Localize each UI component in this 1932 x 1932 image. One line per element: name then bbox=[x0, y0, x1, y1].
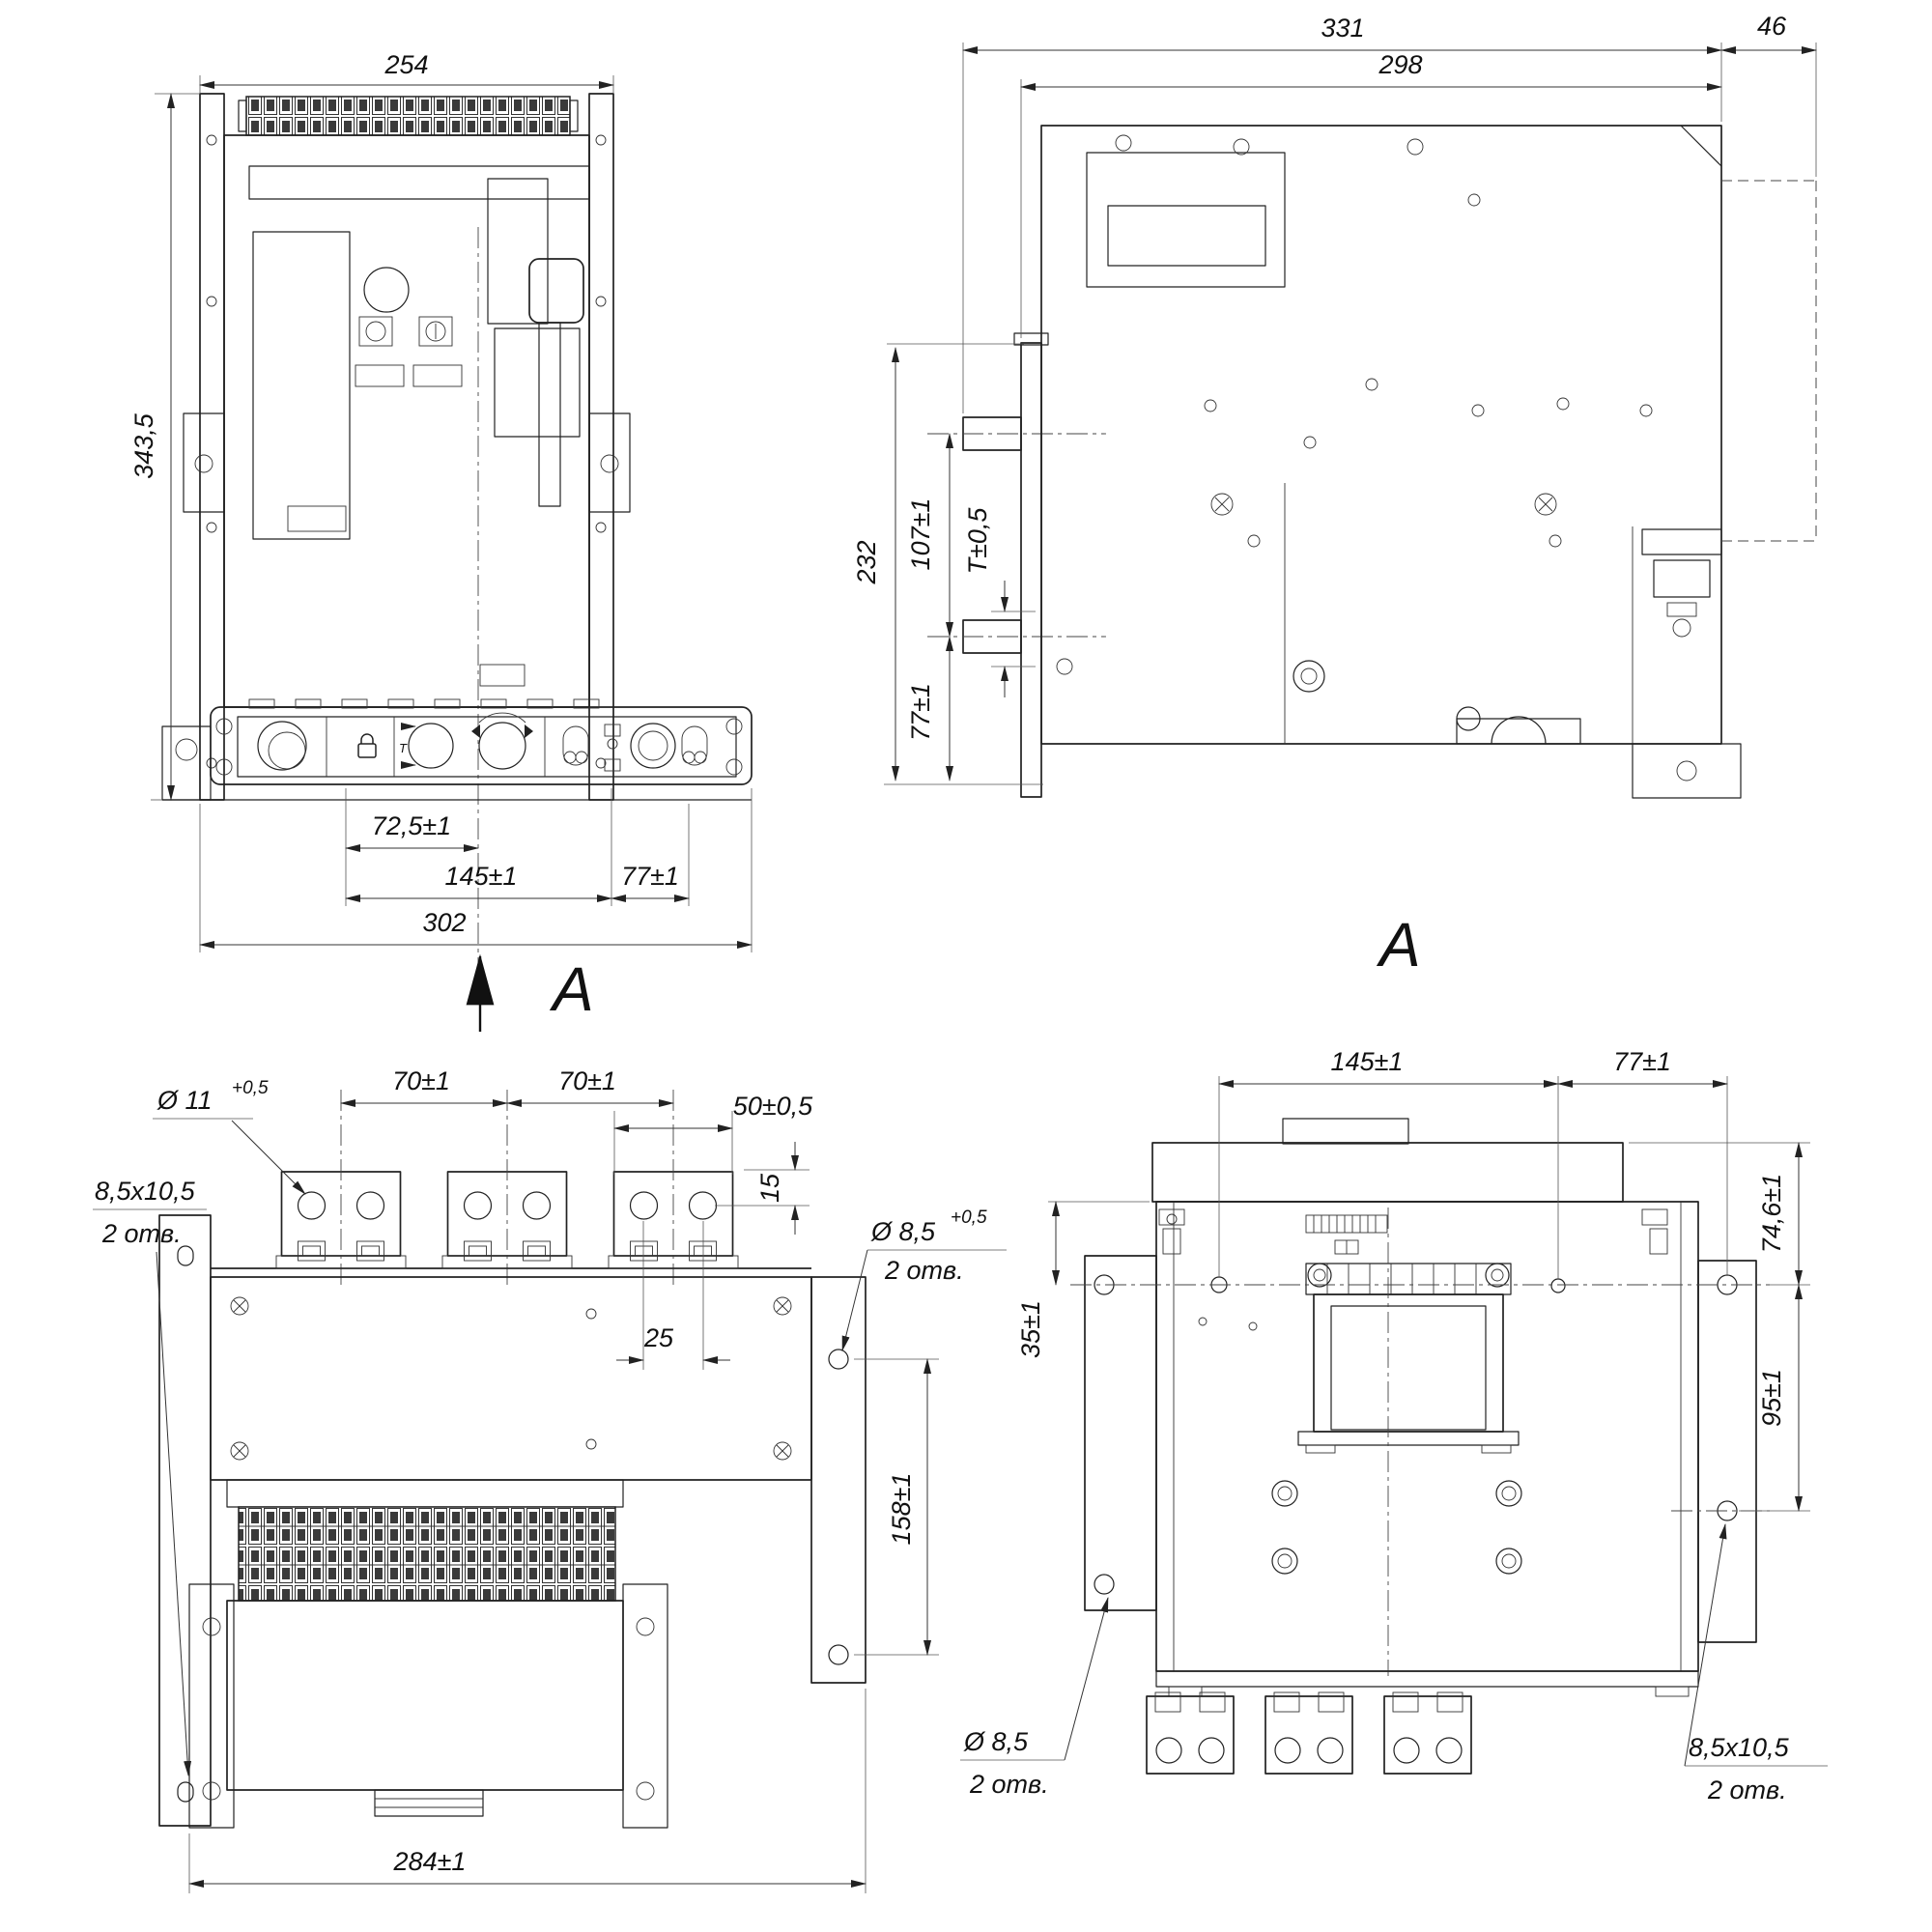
socket-icon bbox=[631, 724, 675, 768]
control-knob[interactable] bbox=[258, 722, 306, 770]
front-handle bbox=[529, 259, 583, 506]
right-flange bbox=[1698, 1261, 1756, 1642]
test-dial[interactable] bbox=[409, 724, 453, 768]
dim-top-vspan: 158±1 bbox=[887, 1473, 916, 1546]
dim-side-body: 298 bbox=[1378, 50, 1422, 79]
callout-bottom-dia85: Ø 8,5 bbox=[963, 1727, 1029, 1756]
padlock-icon bbox=[358, 734, 376, 757]
right-mounting-flange bbox=[811, 1277, 866, 1683]
top-terminal-strip bbox=[239, 1507, 615, 1601]
callout-top-dia11-tol: +0,5 bbox=[232, 1078, 269, 1098]
dim-front-total: 302 bbox=[422, 908, 466, 937]
dim-bottom-left-v: 35±1 bbox=[1016, 1300, 1045, 1358]
dim-side-lower: 77±1 bbox=[906, 683, 935, 741]
callout-bottom-dia85-note: 2 отв. bbox=[969, 1770, 1049, 1799]
callout-top-dia85: Ø 8,5 bbox=[870, 1217, 936, 1246]
dim-top-total: 284±1 bbox=[393, 1847, 467, 1876]
drawing-canvas: T 254 343,5 72,5±1 145±1 77±1 302 A bbox=[0, 0, 1932, 1932]
hex-bolt bbox=[1272, 1481, 1521, 1574]
connector-comb bbox=[1306, 1215, 1387, 1254]
side-display-window bbox=[1087, 153, 1285, 287]
front-terminal-strip bbox=[239, 97, 578, 135]
dim-side-t: T±0,5 bbox=[963, 507, 992, 575]
side-screw bbox=[1535, 494, 1556, 515]
front-view: T bbox=[162, 94, 752, 966]
bottom-terminal-lugs bbox=[1147, 1692, 1471, 1774]
callout-top-slot-note: 2 отв. bbox=[101, 1219, 182, 1248]
technical-drawing: T 254 343,5 72,5±1 145±1 77±1 302 A bbox=[0, 0, 1932, 1932]
panel-screw bbox=[231, 1297, 791, 1460]
front-dimensions: 254 343,5 72,5±1 145±1 77±1 302 A bbox=[129, 50, 752, 1032]
dim-side-shaft: 107±1 bbox=[906, 498, 935, 571]
top-terminal-lugs bbox=[282, 1090, 733, 1290]
front-nameplate bbox=[495, 328, 580, 437]
side-screw bbox=[1211, 494, 1233, 515]
dim-front-half: 72,5±1 bbox=[372, 811, 451, 840]
view-label-a-front: A bbox=[549, 954, 594, 1024]
dim-top-pitch1: 70±1 bbox=[392, 1066, 450, 1095]
panel-t-label: T bbox=[399, 741, 408, 755]
callout-top-dia11: Ø 11 bbox=[156, 1086, 213, 1115]
dim-top-pitch2: 70±1 bbox=[558, 1066, 616, 1095]
dim-bottom-right-v: 95±1 bbox=[1757, 1369, 1786, 1427]
dim-top-pad: 50±0,5 bbox=[733, 1092, 813, 1121]
dim-front-mid: 145±1 bbox=[445, 862, 518, 891]
dim-bottom-top-right: 74,6±1 bbox=[1757, 1174, 1786, 1253]
dim-side-rail: 46 bbox=[1757, 12, 1787, 41]
dim-bottom-right: 77±1 bbox=[1613, 1047, 1671, 1076]
view-label-a-side: A bbox=[1376, 910, 1421, 980]
callout-bottom-slot-note: 2 отв. bbox=[1707, 1776, 1787, 1804]
callout-top-slot: 8,5x10,5 bbox=[95, 1177, 196, 1206]
dim-top-edge: 15 bbox=[755, 1173, 784, 1203]
dim-front-right: 77±1 bbox=[621, 862, 679, 891]
transformer-block bbox=[1298, 1264, 1519, 1453]
front-round-opening bbox=[364, 268, 409, 312]
selector-knob[interactable] bbox=[479, 723, 526, 769]
dim-front-height: 343,5 bbox=[129, 412, 158, 479]
left-flange bbox=[1085, 1256, 1156, 1610]
callout-bottom-slot: 8,5x10,5 bbox=[1689, 1733, 1790, 1762]
left-mounting-flange bbox=[159, 1215, 211, 1826]
dim-top-holecc: 25 bbox=[643, 1323, 674, 1352]
side-dimensions: 331 298 46 232 107±1 77±1 T±0,5 A bbox=[852, 12, 1816, 980]
dim-side-total: 331 bbox=[1321, 14, 1364, 43]
side-view bbox=[927, 126, 1816, 798]
callout-top-dia85-tol: +0,5 bbox=[951, 1207, 987, 1228]
front-control-panel: T bbox=[211, 699, 752, 784]
dim-side-height: 232 bbox=[852, 540, 881, 584]
callout-top-dia85-note: 2 отв. bbox=[884, 1256, 964, 1285]
bottom-view bbox=[1070, 1119, 1770, 1774]
din-clamp bbox=[1642, 529, 1721, 637]
dim-bottom-left: 145±1 bbox=[1331, 1047, 1404, 1076]
dim-front-top-width: 254 bbox=[384, 50, 428, 79]
